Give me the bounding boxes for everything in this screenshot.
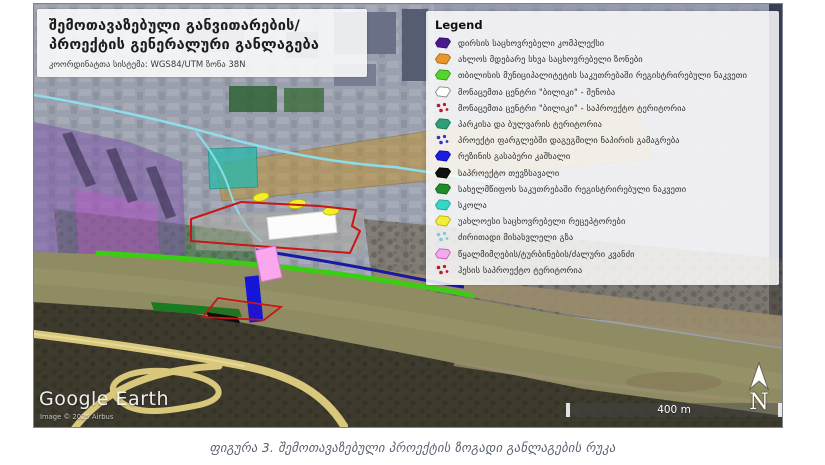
map-title-box: შემოთავაზებული განვითარების/ პროექტის გე… [37, 9, 367, 77]
satellite-map: შემოთავაზებული განვითარების/ პროექტის გე… [33, 3, 783, 428]
legend-item: დირსის საცხოვრებელი კომპლექსი [435, 35, 771, 51]
polygon-area-icon [435, 248, 452, 260]
polygon-area-icon [435, 183, 452, 195]
legend-item: მონაცემთა ცენტრი "ბილიკი" - საპროექტო ტე… [435, 100, 771, 116]
scale-bar-tick-right [778, 403, 782, 417]
figure-page: შემოთავაზებული განვითარების/ პროექტის გე… [0, 0, 825, 465]
legend-item: ჰესის საპროექტო ტერიტორია [435, 262, 771, 278]
legend-item-label: ახლოს მდებარე სხვა საცხოვრებელი ზონები [458, 54, 643, 64]
legend: Legend დირსის საცხოვრებელი კომპლექსი ახლ… [426, 11, 779, 285]
map-title-line1: შემოთავაზებული განვითარების/ [49, 17, 355, 36]
legend-item: თბილისის მუნიციპალიტეტის საკუთრებაში რეგ… [435, 67, 771, 83]
legend-item-label: რეზინის გასაბერი კაშხალი [458, 151, 570, 161]
legend-item: სკოლა [435, 197, 771, 213]
dotted-area-icon [435, 231, 452, 243]
legend-item: მონაცემთა ცენტრი "ბილიკი" - შენობა [435, 84, 771, 100]
imagery-attribution: Image © 2025 Airbus [40, 413, 113, 421]
polygon-area-icon [435, 69, 452, 81]
polygon-area-icon [435, 215, 452, 227]
legend-item: უახლოესი საცხოვრებელი რეცეპტორები [435, 213, 771, 229]
legend-item-label: ჰესის საპროექტო ტერიტორია [458, 265, 582, 275]
legend-item-label: წყალმიმღების/ტურბინების/ძალური კვანძი [458, 249, 635, 259]
scale-bar-label: 400 m [657, 404, 691, 416]
map-title-line2: პროექტის გენერალური განლაგება [49, 36, 355, 55]
legend-item-label: დირსის საცხოვრებელი კომპლექსი [458, 38, 604, 48]
legend-item-label: სახელმწიფოს საკუთრებაში რეგისტრირებული ნ… [458, 184, 686, 194]
legend-item-label: პარკისა და ბულვარის ტერიტორია [458, 119, 602, 129]
legend-item: საპროექტო თევზსავალი [435, 165, 771, 181]
legend-item: რეზინის გასაბერი კაშხალი [435, 148, 771, 164]
legend-item: ახლოს მდებარე სხვა საცხოვრებელი ზონები [435, 51, 771, 67]
polygon-area-icon [435, 53, 452, 65]
school-overlay [208, 147, 257, 189]
legend-item-label: ძირითადი მისასვლელი გზა [458, 232, 573, 242]
legend-item-label: საპროექტო თევზსავალი [458, 168, 559, 178]
legend-item: პროექტი ფარგლებში დაგეგმილი ნაპირის გამა… [435, 132, 771, 148]
polygon-area-icon [435, 86, 452, 98]
legend-item: ძირითადი მისასვლელი გზა [435, 229, 771, 245]
legend-title: Legend [435, 18, 771, 32]
legend-item-label: უახლოესი საცხოვრებელი რეცეპტორები [458, 216, 625, 226]
google-earth-watermark: Google Earth [39, 388, 169, 410]
scale-bar-tick-left [566, 403, 570, 417]
legend-item: წყალმიმღების/ტურბინების/ძალური კვანძი [435, 245, 771, 261]
polygon-area-icon [435, 37, 452, 49]
legend-item: სახელმწიფოს საკუთრებაში რეგისტრირებული ნ… [435, 181, 771, 197]
north-arrow-icon [741, 361, 777, 391]
dotted-area-icon [435, 264, 452, 276]
legend-item-label: სკოლა [458, 200, 487, 210]
legend-item: პარკისა და ბულვარის ტერიტორია [435, 116, 771, 132]
polygon-area-icon [435, 167, 452, 179]
north-arrow: N [741, 361, 777, 417]
legend-item-label: მონაცემთა ცენტრი "ბილიკი" - შენობა [458, 87, 615, 97]
north-label: N [741, 392, 777, 414]
figure-caption: ფიგურა 3. შემოთავაზებული პროექტის ზოგადი… [0, 440, 825, 455]
legend-item-label: მონაცემთა ცენტრი "ბილიკი" - საპროექტო ტე… [458, 103, 686, 113]
coordinate-system-note: კოორდინატთა სისტემა: WGS84/UTM ზონა 38N [49, 60, 355, 70]
polygon-area-icon [435, 199, 452, 211]
dotted-area-icon [435, 102, 452, 114]
legend-list: დირსის საცხოვრებელი კომპლექსი ახლოს მდებ… [435, 35, 771, 278]
polygon-area-icon [435, 150, 452, 162]
dotted-area-icon [435, 134, 452, 146]
polygon-area-icon [435, 118, 452, 130]
legend-item-label: თბილისის მუნიციპალიტეტის საკუთრებაში რეგ… [458, 70, 747, 80]
legend-item-label: პროექტი ფარგლებში დაგეგმილი ნაპირის გამა… [458, 135, 680, 145]
